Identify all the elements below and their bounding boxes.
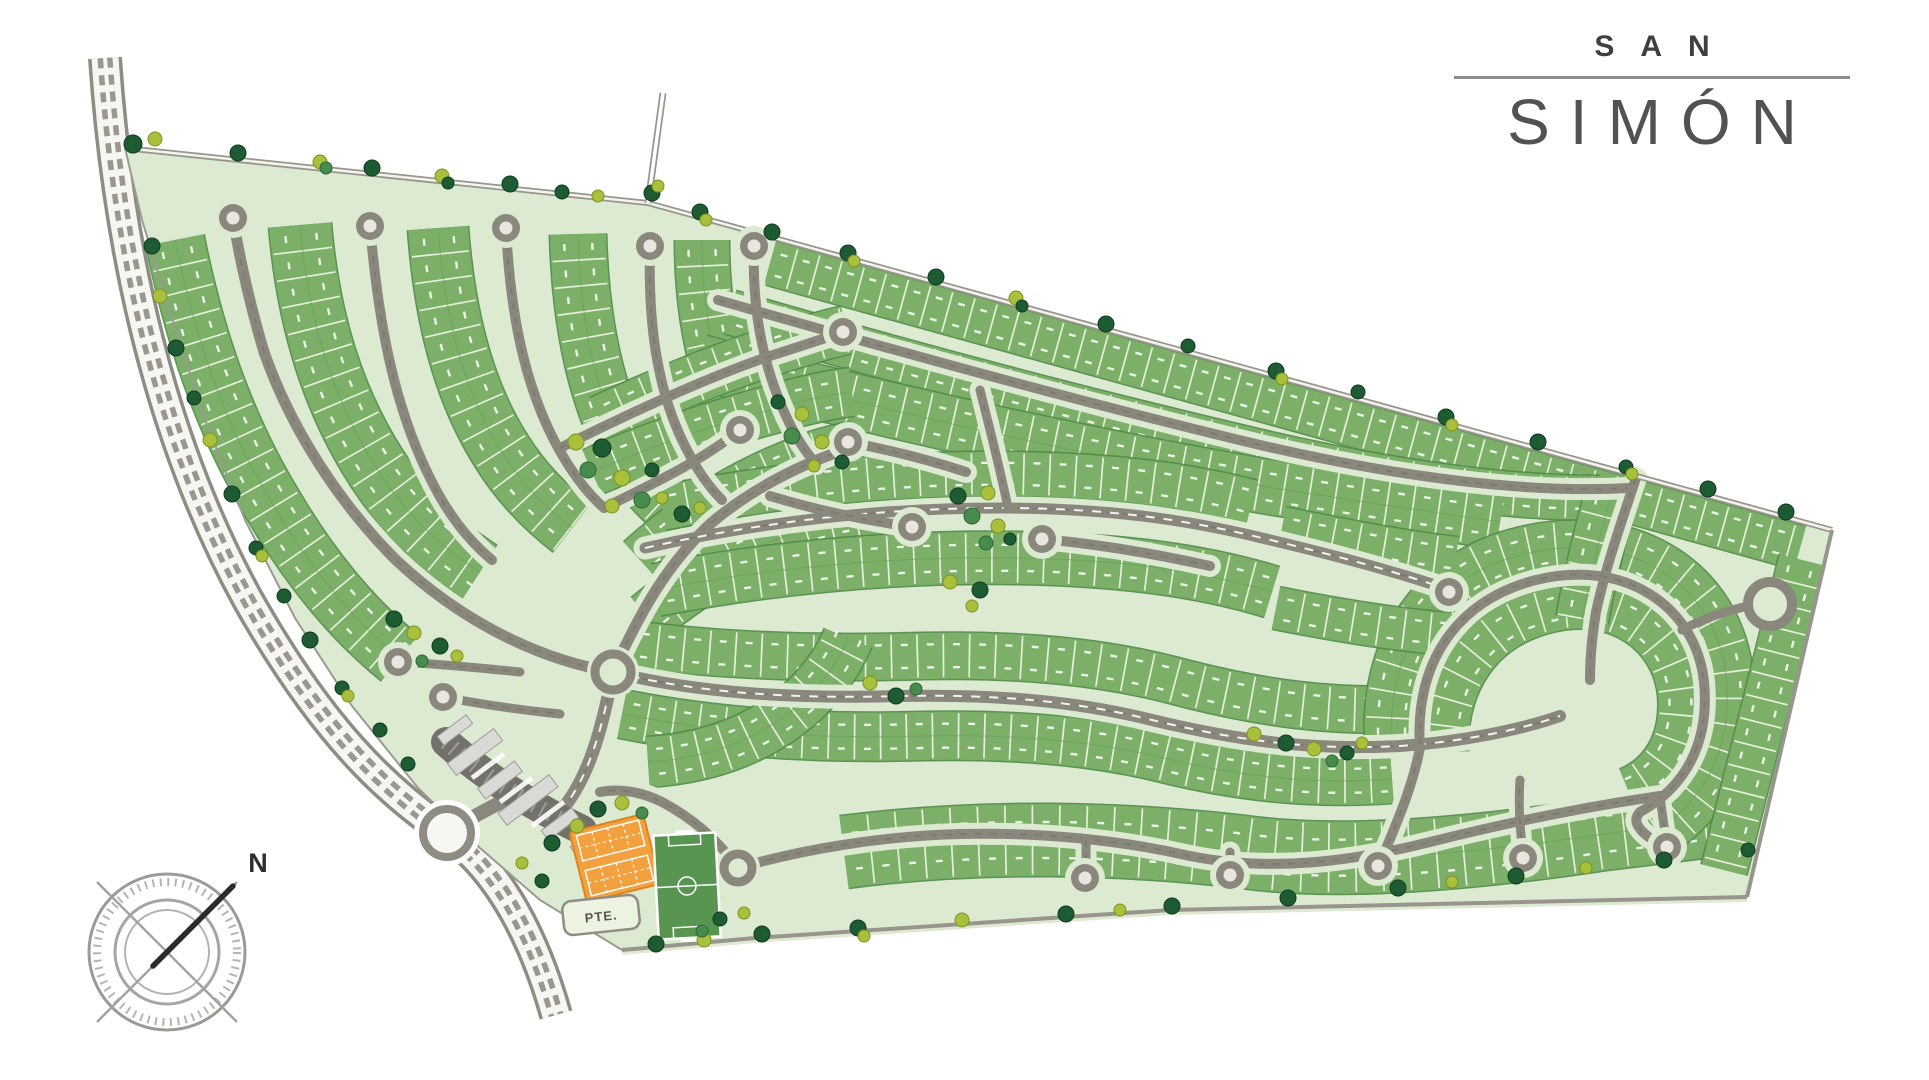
tree-icon (570, 819, 584, 833)
tree-icon (1276, 373, 1288, 385)
soccer-field (653, 828, 721, 943)
tree-icon (544, 835, 560, 851)
tree-icon (1656, 852, 1672, 868)
tree-icon (1530, 434, 1546, 450)
tree-icon (674, 506, 690, 522)
tree-icon (1778, 504, 1794, 520)
tree-icon (636, 807, 648, 819)
compass-north-label: N (248, 848, 268, 878)
tree-icon (277, 589, 291, 603)
tree-icon (764, 224, 780, 240)
logo-divider (1454, 76, 1850, 79)
tree-icon (230, 145, 246, 161)
tree-icon (1247, 727, 1261, 741)
tree-icon (615, 796, 629, 810)
tree-icon (342, 690, 354, 702)
tree-icon (966, 600, 978, 612)
tree-icon (656, 492, 668, 504)
tree-icon (964, 508, 980, 524)
tree-icon (835, 455, 849, 469)
logo: SAN SIMÓN (1452, 30, 1852, 159)
site-plan-map: N PTE. (0, 0, 1929, 1080)
tree-icon (144, 238, 160, 254)
tree-icon (256, 550, 268, 562)
tree-icon (1508, 868, 1524, 884)
tree-icon (738, 907, 750, 919)
tree-icon (1340, 746, 1354, 760)
tree-icon (555, 185, 569, 199)
tree-icon (580, 462, 596, 478)
tree-icon (795, 407, 809, 421)
canvas: N PTE. SAN SIMÓN (0, 0, 1929, 1080)
tree-icon (771, 395, 785, 409)
tree-icon (888, 688, 904, 704)
tree-icon (407, 626, 421, 640)
logo-line-2: SIMÓN (1452, 85, 1852, 159)
tree-icon (302, 632, 318, 648)
tree-icon (416, 655, 428, 667)
tree-icon (1351, 385, 1365, 399)
tree-icon (605, 499, 619, 513)
tree-icon (502, 176, 518, 192)
tree-icon (187, 391, 201, 405)
tree-icon (991, 519, 1005, 533)
tree-icon (645, 463, 659, 477)
tree-icon (652, 180, 664, 192)
tree-icon (979, 536, 993, 550)
gate-tag: PTE. (561, 894, 640, 936)
tree-icon (364, 160, 380, 176)
tree-icon (592, 190, 604, 202)
tree-icon (516, 857, 528, 869)
tree-icon (451, 650, 463, 662)
tree-icon (1181, 339, 1195, 353)
tree-icon (1700, 481, 1716, 497)
tree-icon (1307, 742, 1321, 756)
tree-icon (401, 757, 415, 771)
tree-icon (696, 925, 708, 937)
tree-icon (1356, 737, 1368, 749)
tree-icon (153, 289, 167, 303)
highway-roundabout (423, 809, 471, 857)
tree-icon (910, 683, 922, 695)
tree-icon (634, 492, 650, 508)
tree-icon (858, 930, 870, 942)
tree-icon (972, 582, 988, 598)
tree-icon (648, 936, 664, 952)
compass-rose (89, 874, 245, 1030)
tree-icon (1580, 862, 1592, 874)
tree-icon (754, 926, 770, 942)
tree-icon (590, 801, 606, 817)
tree-icon (1098, 316, 1114, 332)
tree-icon (224, 486, 240, 502)
tree-icon (442, 177, 454, 189)
tree-icon (593, 439, 611, 457)
tree-icon (981, 486, 995, 500)
tree-icon (568, 434, 584, 450)
tree-icon (203, 433, 217, 447)
tree-icon (168, 340, 184, 356)
tree-icon (1016, 300, 1028, 312)
tree-icon (1446, 419, 1458, 431)
tree-icon (950, 488, 966, 504)
tree-icon (148, 132, 162, 146)
tree-icon (815, 435, 829, 449)
tree-icon (1390, 880, 1406, 896)
logo-line-1: SAN (1452, 30, 1852, 64)
tree-icon (928, 269, 944, 285)
tree-icon (1114, 904, 1126, 916)
tree-icon (1741, 843, 1755, 857)
tree-icon (694, 502, 706, 514)
tree-icon (614, 470, 630, 486)
tree-icon (1278, 735, 1294, 751)
tree-icon (1446, 876, 1458, 888)
tree-icon (1164, 898, 1180, 914)
tree-icon (848, 255, 860, 267)
tree-icon (432, 638, 448, 654)
tree-icon (863, 676, 877, 690)
tree-icon (700, 214, 712, 226)
compass-needle (153, 886, 233, 966)
tree-icon (713, 912, 727, 926)
tree-icon (955, 913, 969, 927)
tree-icon (373, 723, 387, 737)
tree-icon (386, 611, 402, 627)
tree-icon (943, 575, 957, 589)
tree-icon (784, 428, 800, 444)
tree-icon (320, 162, 332, 174)
tree-icon (124, 135, 142, 153)
tree-icon (1058, 906, 1074, 922)
tree-icon (1626, 468, 1638, 480)
tree-icon (1004, 533, 1016, 545)
tree-icon (1280, 890, 1296, 906)
tree-icon (808, 460, 820, 472)
tree-icon (535, 874, 549, 888)
tree-icon (1326, 755, 1338, 767)
